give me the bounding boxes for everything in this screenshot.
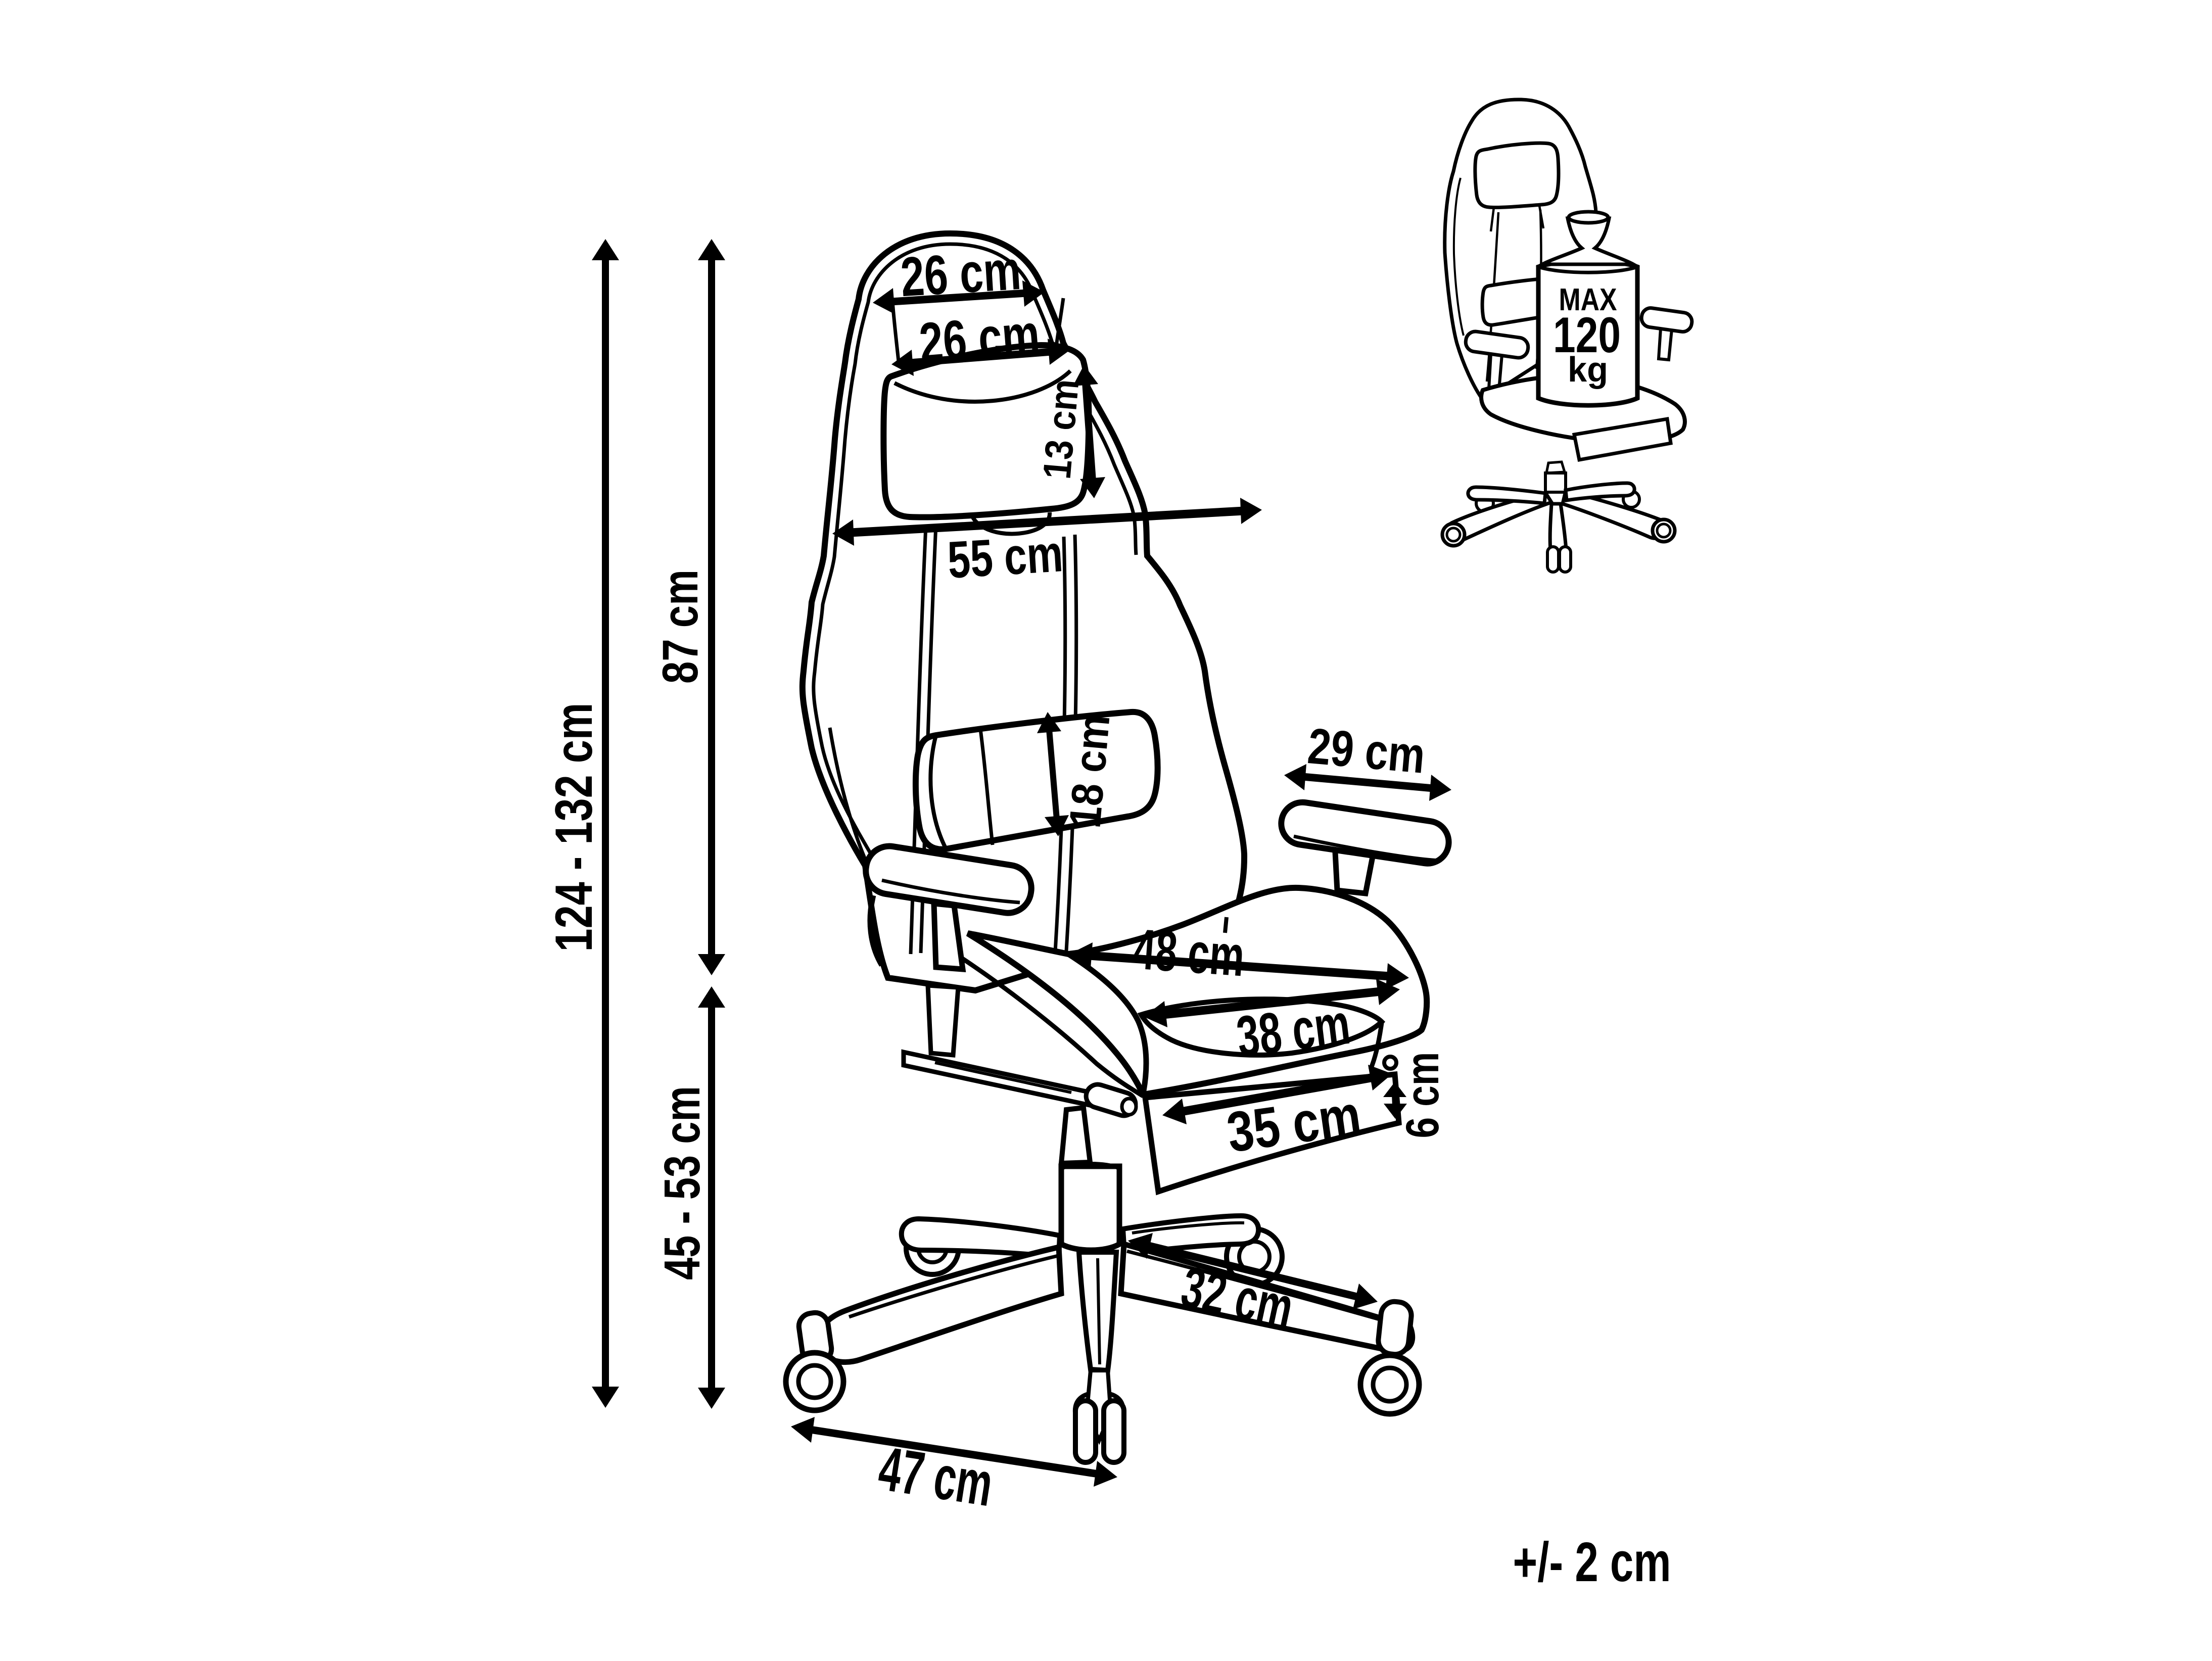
svg-text:26 cm: 26 cm: [899, 239, 1023, 308]
svg-text:55 cm: 55 cm: [946, 524, 1065, 589]
svg-text:6 cm: 6 cm: [1397, 1052, 1448, 1138]
svg-text:48 cm: 48 cm: [1132, 917, 1246, 988]
svg-text:124 - 132 cm: 124 - 132 cm: [545, 703, 603, 952]
svg-text:18 cm: 18 cm: [1059, 713, 1119, 830]
svg-text:26 cm: 26 cm: [917, 303, 1042, 374]
svg-text:kg: kg: [1568, 350, 1608, 389]
svg-text:38 cm: 38 cm: [1233, 992, 1353, 1069]
svg-text:45 - 53 cm: 45 - 53 cm: [654, 1086, 711, 1280]
svg-text:87 cm: 87 cm: [652, 570, 708, 684]
svg-text:13 cm: 13 cm: [1034, 377, 1088, 481]
svg-text:+/- 2 cm: +/- 2 cm: [1513, 1531, 1671, 1593]
svg-text:29 cm: 29 cm: [1305, 718, 1427, 784]
